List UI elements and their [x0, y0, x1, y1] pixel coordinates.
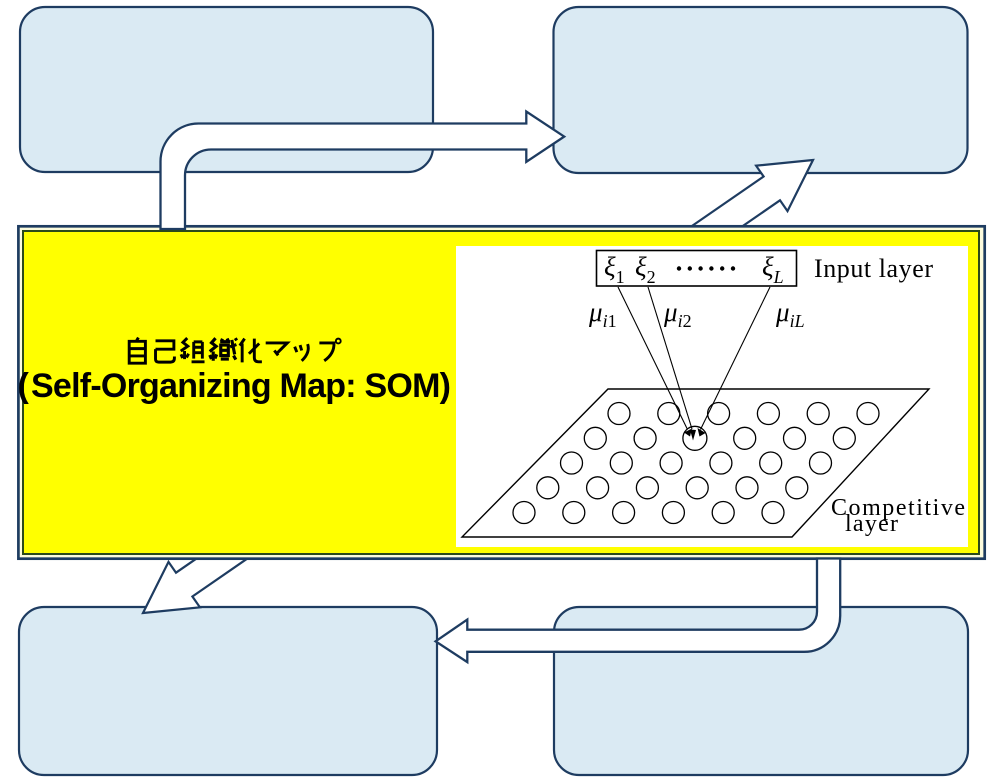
svg-text:Input layer: Input layer: [814, 254, 933, 283]
svg-text:Self-Organizing Map: SOM): Self-Organizing Map: SOM): [31, 367, 451, 405]
svg-text:(: (: [18, 367, 30, 405]
svg-text:layer: layer: [845, 511, 898, 537]
